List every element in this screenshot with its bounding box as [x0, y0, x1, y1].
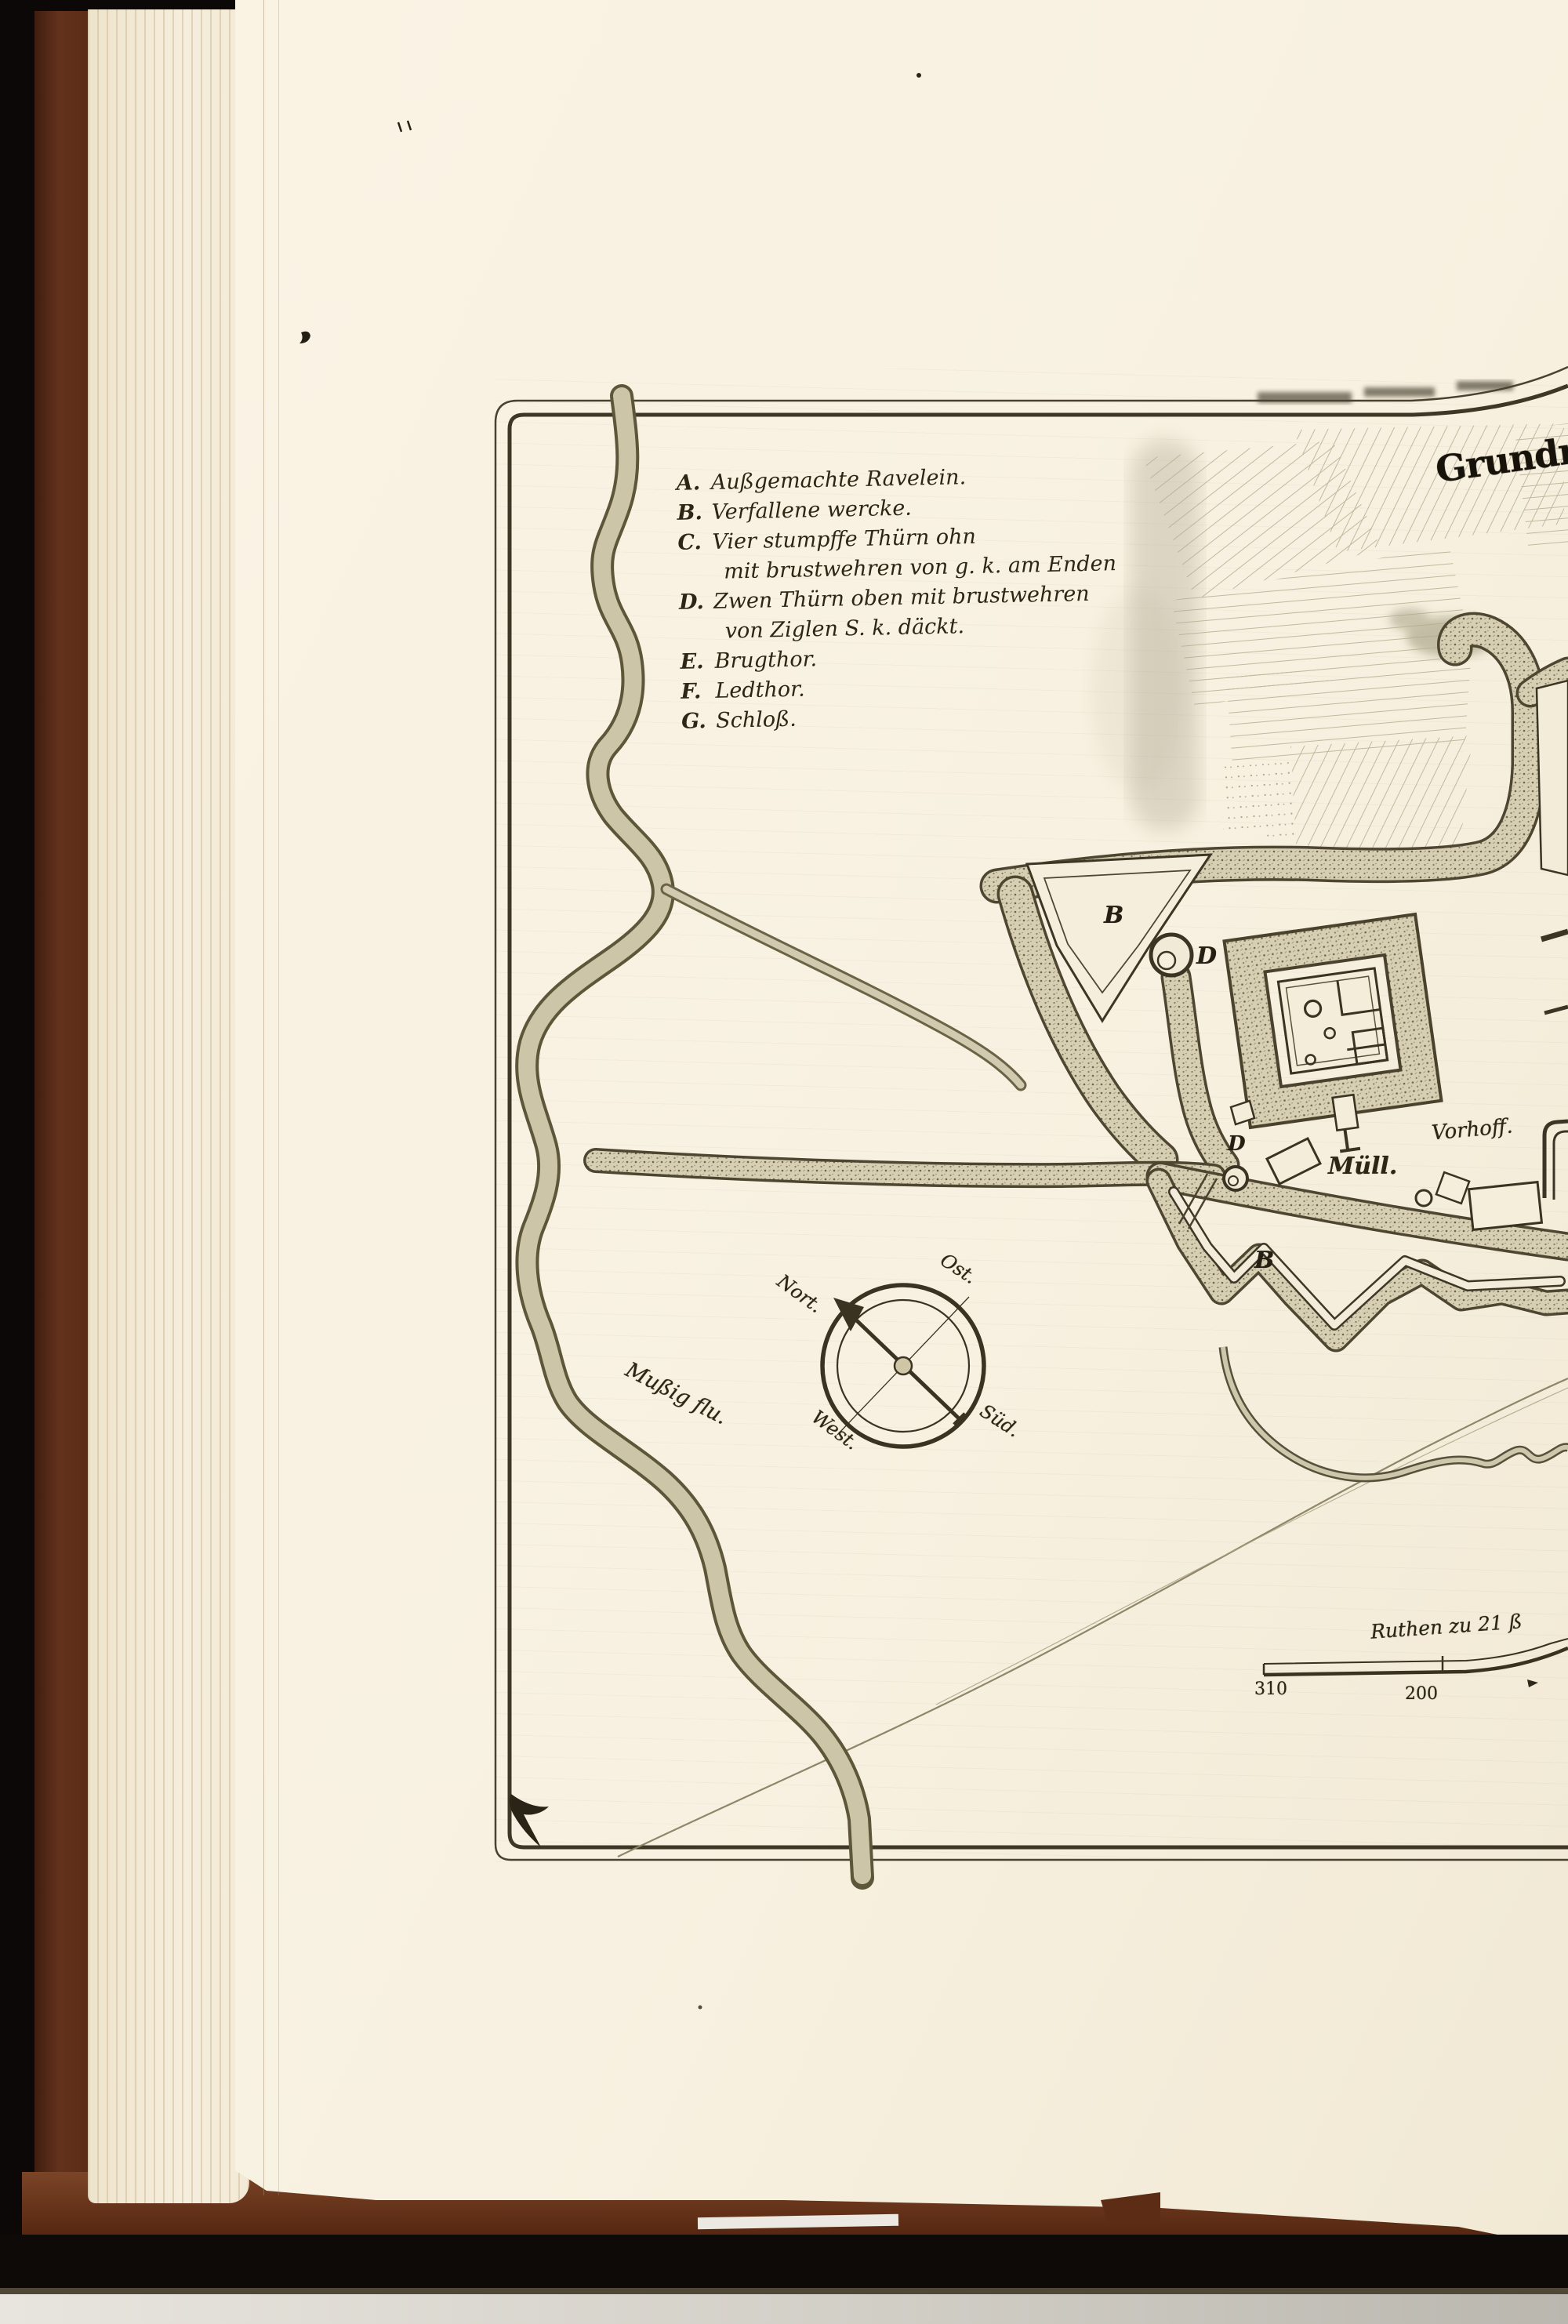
legend-letter: E.: [680, 647, 715, 677]
compass-rose: [822, 1285, 984, 1447]
marker-b-ravelin: B: [1104, 902, 1123, 929]
ink-blots: [299, 73, 921, 2010]
legend-text: mit brustwehren von g. k. am Enden: [724, 551, 1116, 583]
legend-text: Schloß.: [716, 707, 797, 733]
marker-d-gate: D: [1228, 1132, 1246, 1156]
castle-schloss: [1244, 935, 1428, 1160]
label-mill: Müll.: [1328, 1153, 1397, 1180]
scale-value-mid: 200: [1405, 1684, 1438, 1704]
legend-text: Vier stumpffe Thürn ohn: [712, 525, 976, 554]
legend-letter: G.: [681, 706, 717, 737]
legend-text: Zwen Thürn oben mit brustwehren: [713, 582, 1090, 614]
legend-letter: F.: [681, 677, 716, 707]
legend-text: Brugthor.: [714, 647, 817, 674]
stream: [1223, 1347, 1568, 1478]
scale-value-left: 310: [1254, 1679, 1287, 1699]
legend-letter: B.: [677, 498, 712, 528]
marker-b-bastion: B: [1254, 1247, 1274, 1274]
legend-letter: A.: [676, 468, 711, 499]
scanned-book-photo: Grundriß A.Außgemachte Ravelein. B.Verfa…: [0, 0, 1568, 2324]
legend-text: Außgemachte Ravelein.: [711, 465, 967, 495]
legend-letter: D.: [679, 587, 714, 618]
right-edge-structures: [1537, 681, 1568, 1200]
legend-letter: C.: [677, 528, 713, 558]
legend-text: Verfallene wercke.: [711, 496, 912, 525]
legend-text: von Ziglen S. k. däckt.: [725, 614, 965, 643]
marker-d-tower: D: [1196, 942, 1217, 970]
map-legend: A.Außgemachte Ravelein. B.Verfallene wer…: [676, 459, 1120, 737]
scale-bar: [1264, 1639, 1568, 1687]
legend-text: Ledthor.: [715, 677, 805, 703]
